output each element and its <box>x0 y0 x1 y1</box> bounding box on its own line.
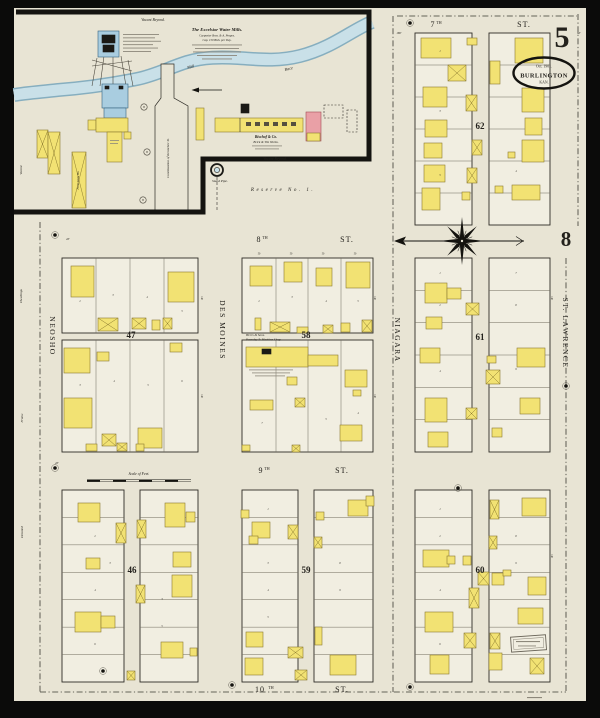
building <box>345 370 367 387</box>
fine-print-line <box>255 376 285 377</box>
fine-print-line <box>252 146 282 147</box>
scale-bar-label: Scale of Feet. <box>129 472 150 476</box>
building <box>492 428 502 437</box>
building <box>250 400 273 410</box>
building <box>495 186 503 193</box>
street-number: 10 <box>255 685 265 694</box>
building <box>315 627 322 645</box>
building <box>105 86 109 89</box>
building <box>252 522 270 538</box>
building <box>172 575 192 597</box>
map-label: Cap. 150 Bbls. per Day. <box>203 38 232 42</box>
building <box>424 165 445 182</box>
building <box>518 608 543 624</box>
fine-print-line <box>255 149 279 150</box>
map-label: Foundry & Machine Shop. <box>245 338 282 342</box>
map-label: Dwellings <box>19 288 23 303</box>
building <box>308 355 338 366</box>
map-label: Brick & Tile Works. <box>253 140 278 144</box>
block-number: 60 <box>476 565 486 575</box>
compass-hub <box>461 240 464 243</box>
building <box>170 343 182 352</box>
survey-dot <box>456 486 460 490</box>
building <box>107 132 122 162</box>
map-label: Flour Ware Ho. <box>76 170 80 190</box>
map-label: Vacant Beyond. <box>141 18 165 22</box>
block-60-outline <box>415 490 472 682</box>
district-number: 8 <box>561 227 572 251</box>
building <box>96 118 128 132</box>
map-label: Carpenter Bros. & A. Propes. <box>199 34 235 38</box>
street-name-vertical: NIAGARA <box>393 317 402 362</box>
street-name-vertical: NEOSHO <box>48 316 57 355</box>
building <box>522 88 544 112</box>
building <box>173 552 191 567</box>
building <box>196 108 204 140</box>
kiln-mark <box>246 122 251 126</box>
building <box>420 348 440 363</box>
scale-bar-segment <box>126 480 139 482</box>
building <box>103 45 114 52</box>
map-label: Vacant Beyond. <box>263 157 287 161</box>
street-ordinal: TH <box>268 685 273 690</box>
building <box>508 152 515 158</box>
stamp-state: KAN. <box>539 81 548 85</box>
street-st-label: ST. <box>335 466 349 475</box>
building <box>242 445 250 451</box>
building <box>246 632 263 647</box>
building <box>423 87 447 107</box>
street-st-label: ST. <box>517 20 531 29</box>
kiln-mark <box>282 122 287 126</box>
map-label: The Excelsior Water Mills. <box>192 27 243 32</box>
map-label: Stand Pipe. <box>212 179 228 183</box>
building <box>425 283 447 303</box>
building <box>517 348 545 367</box>
map-label: Frame <box>20 413 24 424</box>
building <box>86 444 97 451</box>
building <box>78 503 100 522</box>
well-symbol-dot <box>143 106 144 107</box>
survey-dot <box>53 466 57 470</box>
building <box>467 38 477 45</box>
building <box>463 556 471 565</box>
building <box>425 398 447 422</box>
fine-print-line <box>195 48 239 49</box>
stamp-city: BURLINGTON <box>520 73 568 80</box>
building <box>287 377 297 385</box>
survey-dot <box>408 685 412 689</box>
building <box>423 550 449 567</box>
building <box>255 318 261 330</box>
building <box>152 320 160 330</box>
building <box>525 118 542 135</box>
building <box>284 262 302 282</box>
building <box>512 185 540 200</box>
building <box>161 642 183 658</box>
building <box>241 510 249 518</box>
building <box>428 432 448 447</box>
stamp-date: Oct. 1901. <box>536 65 552 69</box>
building <box>522 498 546 516</box>
survey-dot <box>408 21 412 25</box>
building <box>487 356 496 363</box>
building <box>102 35 115 43</box>
fine-print-line <box>110 143 118 144</box>
street-number: 9 <box>259 466 264 475</box>
building <box>346 262 370 288</box>
building <box>75 612 101 632</box>
dimension-label: 180' <box>396 31 402 35</box>
map-features: 4723453456582345754462463535913458960124… <box>14 8 586 701</box>
block-number: 61 <box>476 332 486 342</box>
street-name-vertical: ST. LAWRENCE <box>561 297 570 368</box>
building <box>489 653 502 670</box>
building <box>348 500 368 516</box>
building <box>422 188 440 210</box>
fine-print-line <box>193 52 241 53</box>
building <box>430 655 449 674</box>
fine-print-line <box>518 646 536 647</box>
scale-bar-segment <box>100 480 113 482</box>
building <box>250 266 272 286</box>
building <box>503 570 511 576</box>
fine-print-line <box>110 140 119 141</box>
kiln-mark <box>291 122 296 126</box>
building <box>88 120 96 130</box>
building <box>186 512 195 522</box>
building <box>136 444 144 451</box>
map-label: Vacant <box>19 164 23 174</box>
fine-print-line <box>123 41 161 42</box>
building <box>425 612 453 632</box>
building <box>245 658 263 675</box>
block-number: 46 <box>128 565 138 575</box>
kiln-mark <box>255 122 260 126</box>
survey-dot <box>230 683 234 687</box>
building <box>462 192 470 200</box>
stand-pipe-core <box>214 167 219 172</box>
building <box>307 133 320 141</box>
building <box>119 86 123 89</box>
dimension-label: 20' <box>55 461 59 465</box>
block-number: 59 <box>302 565 312 575</box>
fine-print-line <box>123 44 153 45</box>
fine-print-line <box>123 34 159 35</box>
building <box>246 347 308 367</box>
street-st-label: ST. <box>340 235 354 244</box>
building <box>424 143 442 158</box>
building <box>124 132 131 139</box>
building <box>366 496 374 506</box>
scanned-map-photo: 4723453456582345754462463535913458960124… <box>0 0 600 718</box>
map-label: Herrs & Sons. <box>245 333 265 337</box>
fine-print-line <box>527 697 542 698</box>
street-ordinal: TH <box>262 235 267 240</box>
fine-print-line <box>249 370 293 371</box>
fine-print-line <box>252 373 290 374</box>
street-number: 8 <box>257 235 262 244</box>
dimension-label: 60' <box>577 31 581 35</box>
building <box>330 655 356 675</box>
building <box>165 503 185 527</box>
street-ordinal: TH <box>436 20 441 25</box>
map-label: Continuation of Kennebec St. <box>166 138 170 178</box>
building <box>316 512 324 520</box>
building <box>71 266 94 297</box>
building <box>520 398 540 414</box>
building <box>86 558 100 569</box>
building <box>64 398 92 428</box>
building <box>340 425 362 441</box>
scale-bar-segment <box>178 480 191 482</box>
fine-print-line <box>202 59 232 60</box>
fine-print-line <box>123 51 151 52</box>
building <box>262 349 271 354</box>
survey-dot <box>564 384 568 388</box>
survey-dot <box>101 669 105 673</box>
building <box>97 352 109 361</box>
block-number: 62 <box>476 121 486 131</box>
building <box>490 61 500 84</box>
street-st-label: ST. <box>335 685 349 694</box>
building <box>241 104 249 113</box>
building <box>528 577 546 595</box>
street-name-vertical: DES MOINES <box>218 300 227 360</box>
block-number: 47 <box>127 330 137 340</box>
fine-print-line <box>516 641 540 642</box>
building <box>168 272 194 302</box>
map-label: Detailed <box>20 526 24 539</box>
building <box>249 536 258 544</box>
block-number: 58 <box>302 330 312 340</box>
well-symbol-dot <box>142 199 143 200</box>
kiln-mark <box>264 122 269 126</box>
kiln-mark <box>273 122 278 126</box>
building <box>421 38 451 58</box>
building <box>353 390 361 396</box>
street-ordinal: TH <box>264 466 269 471</box>
building <box>64 348 90 373</box>
sheet-number: 5 <box>555 21 570 54</box>
map-label: Bischof & Co. <box>254 135 277 139</box>
fine-print-line <box>123 37 155 38</box>
scale-bar-segment <box>152 480 165 482</box>
building <box>341 323 350 332</box>
fine-print-line <box>197 55 237 56</box>
building <box>522 140 544 162</box>
fine-print-line <box>123 48 158 49</box>
building <box>104 108 126 118</box>
map-sheet: 4723453456582345754462463535913458960124… <box>0 0 600 718</box>
building <box>316 268 332 286</box>
building <box>492 573 504 585</box>
building <box>101 616 115 628</box>
survey-dot <box>53 233 57 237</box>
well-symbol-dot <box>146 151 147 152</box>
map-label: Reserve No. 1. <box>250 188 315 193</box>
dimension-label: 20' <box>66 237 70 241</box>
building <box>447 288 461 299</box>
building <box>426 317 442 329</box>
fine-print-line <box>192 45 242 46</box>
building <box>447 556 455 564</box>
building <box>425 120 447 137</box>
street-number: 7 <box>431 20 436 29</box>
building <box>190 648 197 656</box>
